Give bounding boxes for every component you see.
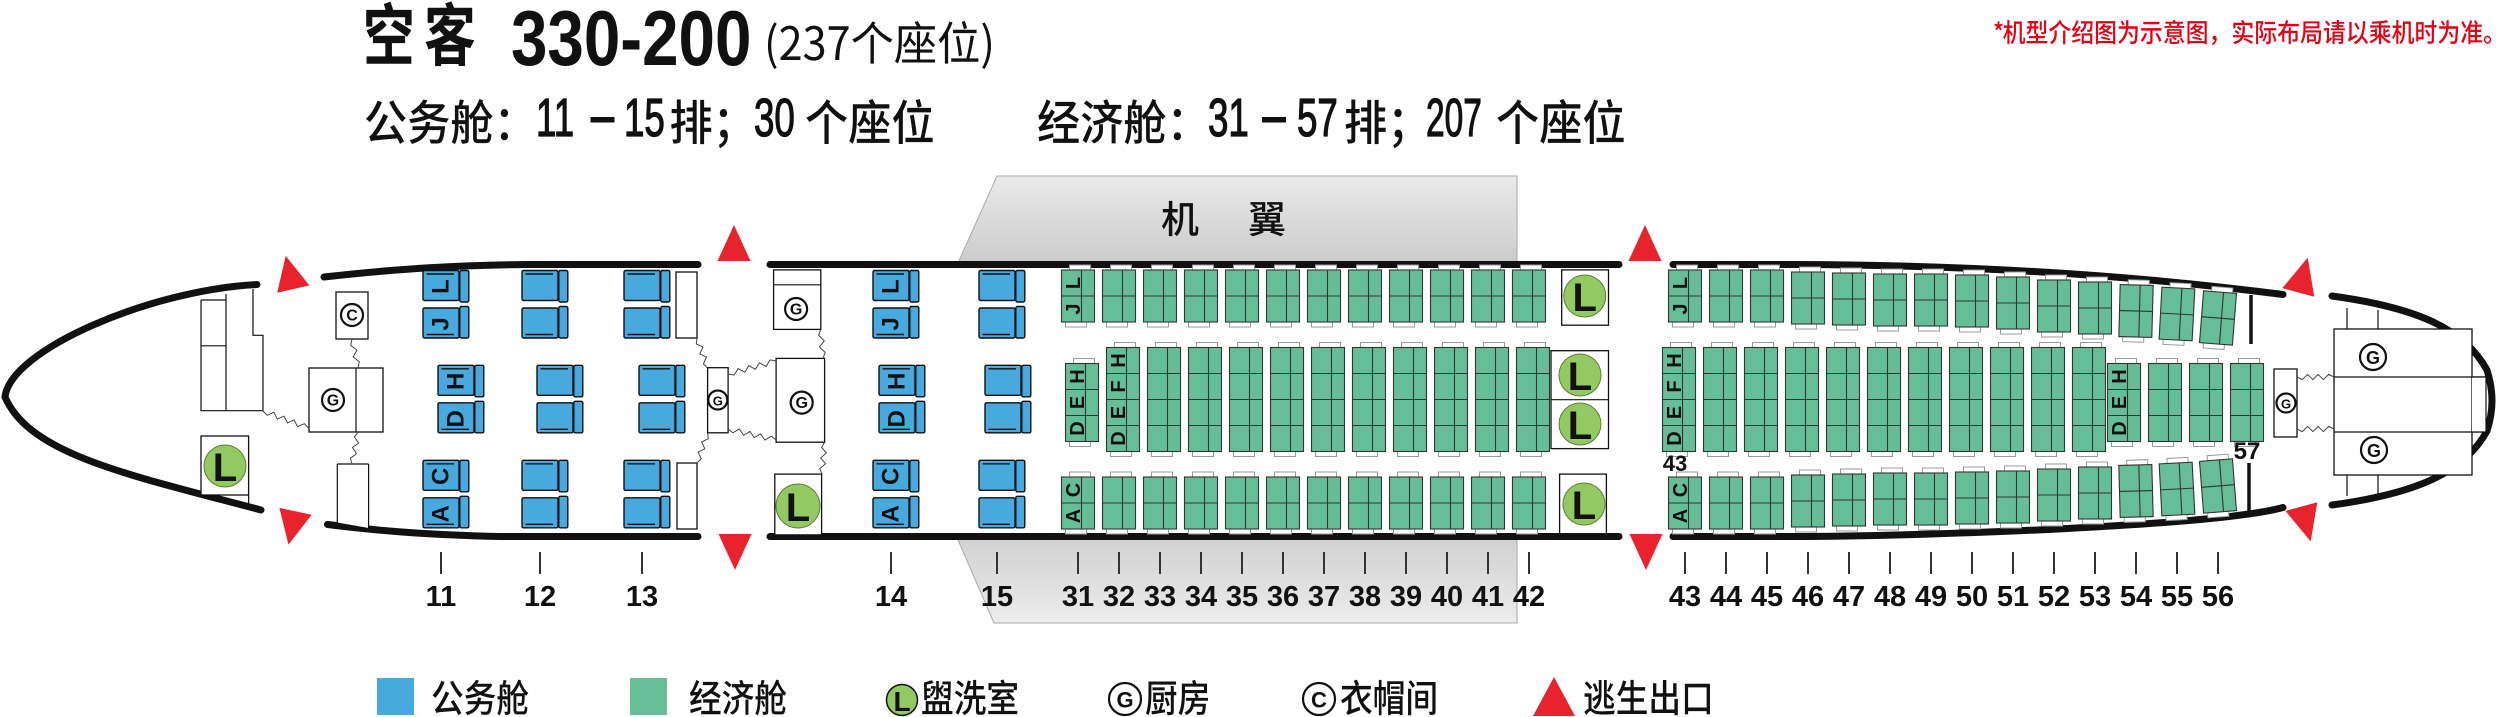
svg-text:41: 41: [1472, 581, 1504, 613]
svg-text:C: C: [878, 468, 905, 485]
svg-text:H: H: [1067, 369, 1089, 383]
svg-text:L: L: [1572, 276, 1596, 320]
svg-text:D: D: [1664, 431, 1686, 445]
svg-text:37: 37: [1308, 581, 1340, 613]
svg-text:11: 11: [536, 87, 574, 148]
svg-text:D: D: [1067, 421, 1089, 435]
svg-text:15: 15: [981, 581, 1013, 613]
svg-text:54: 54: [2120, 581, 2152, 613]
svg-text:44: 44: [1710, 581, 1742, 613]
svg-text:11: 11: [426, 581, 457, 613]
svg-text:13: 13: [626, 581, 658, 613]
svg-text:L: L: [1572, 484, 1596, 528]
svg-text:43: 43: [1663, 451, 1687, 476]
svg-text:55: 55: [2161, 581, 2193, 613]
svg-text:47: 47: [1833, 581, 1865, 613]
svg-text:12: 12: [524, 581, 556, 613]
svg-text:J: J: [1670, 303, 1692, 314]
svg-text:L: L: [878, 279, 905, 294]
svg-text:E: E: [1108, 406, 1130, 419]
svg-text:C: C: [346, 308, 358, 325]
svg-text:J: J: [428, 317, 455, 330]
svg-text:50: 50: [1956, 581, 1988, 613]
svg-text:E: E: [2109, 396, 2131, 409]
svg-text:H: H: [1108, 353, 1130, 367]
svg-text:C: C: [1670, 483, 1692, 497]
svg-text:L: L: [213, 446, 237, 490]
svg-text:53: 53: [2079, 581, 2111, 613]
svg-text:H: H: [2109, 369, 2131, 383]
svg-text:H: H: [1664, 353, 1686, 367]
svg-text:C: C: [428, 468, 455, 485]
svg-text:A: A: [878, 505, 905, 522]
svg-text:51: 51: [1997, 581, 2029, 613]
svg-text:D: D: [884, 410, 911, 427]
svg-text:E: E: [1067, 396, 1089, 409]
svg-text:31: 31: [1208, 87, 1249, 148]
svg-text:H: H: [884, 373, 911, 390]
svg-text:G: G: [1116, 688, 1133, 713]
svg-text:15: 15: [624, 87, 665, 148]
svg-text:D: D: [1108, 431, 1130, 445]
svg-text:G: G: [2366, 348, 2380, 368]
svg-text:14: 14: [875, 581, 907, 613]
svg-text:A: A: [1063, 509, 1085, 523]
svg-text:40: 40: [1431, 581, 1463, 613]
svg-text:57: 57: [2234, 438, 2261, 465]
svg-text:L: L: [786, 486, 810, 530]
svg-text:D: D: [443, 410, 470, 427]
svg-text:56: 56: [2202, 581, 2234, 613]
svg-text:L: L: [1063, 277, 1085, 289]
svg-text:48: 48: [1874, 581, 1906, 613]
svg-text:G: G: [713, 394, 723, 409]
svg-text:39: 39: [1390, 581, 1422, 613]
svg-text:34: 34: [1185, 581, 1217, 613]
svg-text:46: 46: [1792, 581, 1824, 613]
svg-text:32: 32: [1103, 581, 1135, 613]
svg-text:38: 38: [1349, 581, 1381, 613]
svg-text:G: G: [2281, 397, 2291, 412]
svg-text:52: 52: [2038, 581, 2070, 613]
svg-text:G: G: [327, 393, 339, 410]
svg-text:L: L: [893, 686, 910, 717]
svg-text:45: 45: [1751, 581, 1783, 613]
svg-text:F: F: [1108, 380, 1130, 392]
svg-text:J: J: [1063, 303, 1085, 314]
svg-text:A: A: [1670, 509, 1692, 523]
svg-text:E: E: [1664, 406, 1686, 419]
svg-text:36: 36: [1267, 581, 1299, 613]
svg-text:33: 33: [1144, 581, 1176, 613]
svg-text:C: C: [1311, 688, 1327, 713]
svg-text:42: 42: [1513, 581, 1545, 613]
svg-text:F: F: [1664, 380, 1686, 392]
svg-text:D: D: [2109, 421, 2131, 435]
svg-text:43: 43: [1669, 581, 1701, 613]
svg-text:G: G: [2367, 441, 2381, 461]
svg-text:H: H: [443, 373, 470, 390]
svg-text:330-200: 330-200: [511, 0, 751, 82]
svg-text:35: 35: [1226, 581, 1258, 613]
svg-text:57: 57: [1297, 87, 1338, 148]
svg-text:31: 31: [1062, 581, 1094, 613]
svg-text:207: 207: [1426, 87, 1482, 148]
svg-text:A: A: [428, 505, 455, 522]
svg-text:L: L: [1568, 404, 1592, 448]
svg-text:30: 30: [754, 87, 795, 148]
svg-text:L: L: [428, 279, 455, 294]
svg-text:49: 49: [1915, 581, 1947, 613]
svg-text:C: C: [1063, 483, 1085, 497]
svg-text:L: L: [1568, 355, 1592, 399]
svg-text:G: G: [790, 302, 802, 319]
svg-text:J: J: [878, 317, 905, 330]
svg-text:L: L: [1670, 277, 1692, 289]
svg-text:G: G: [795, 395, 807, 412]
